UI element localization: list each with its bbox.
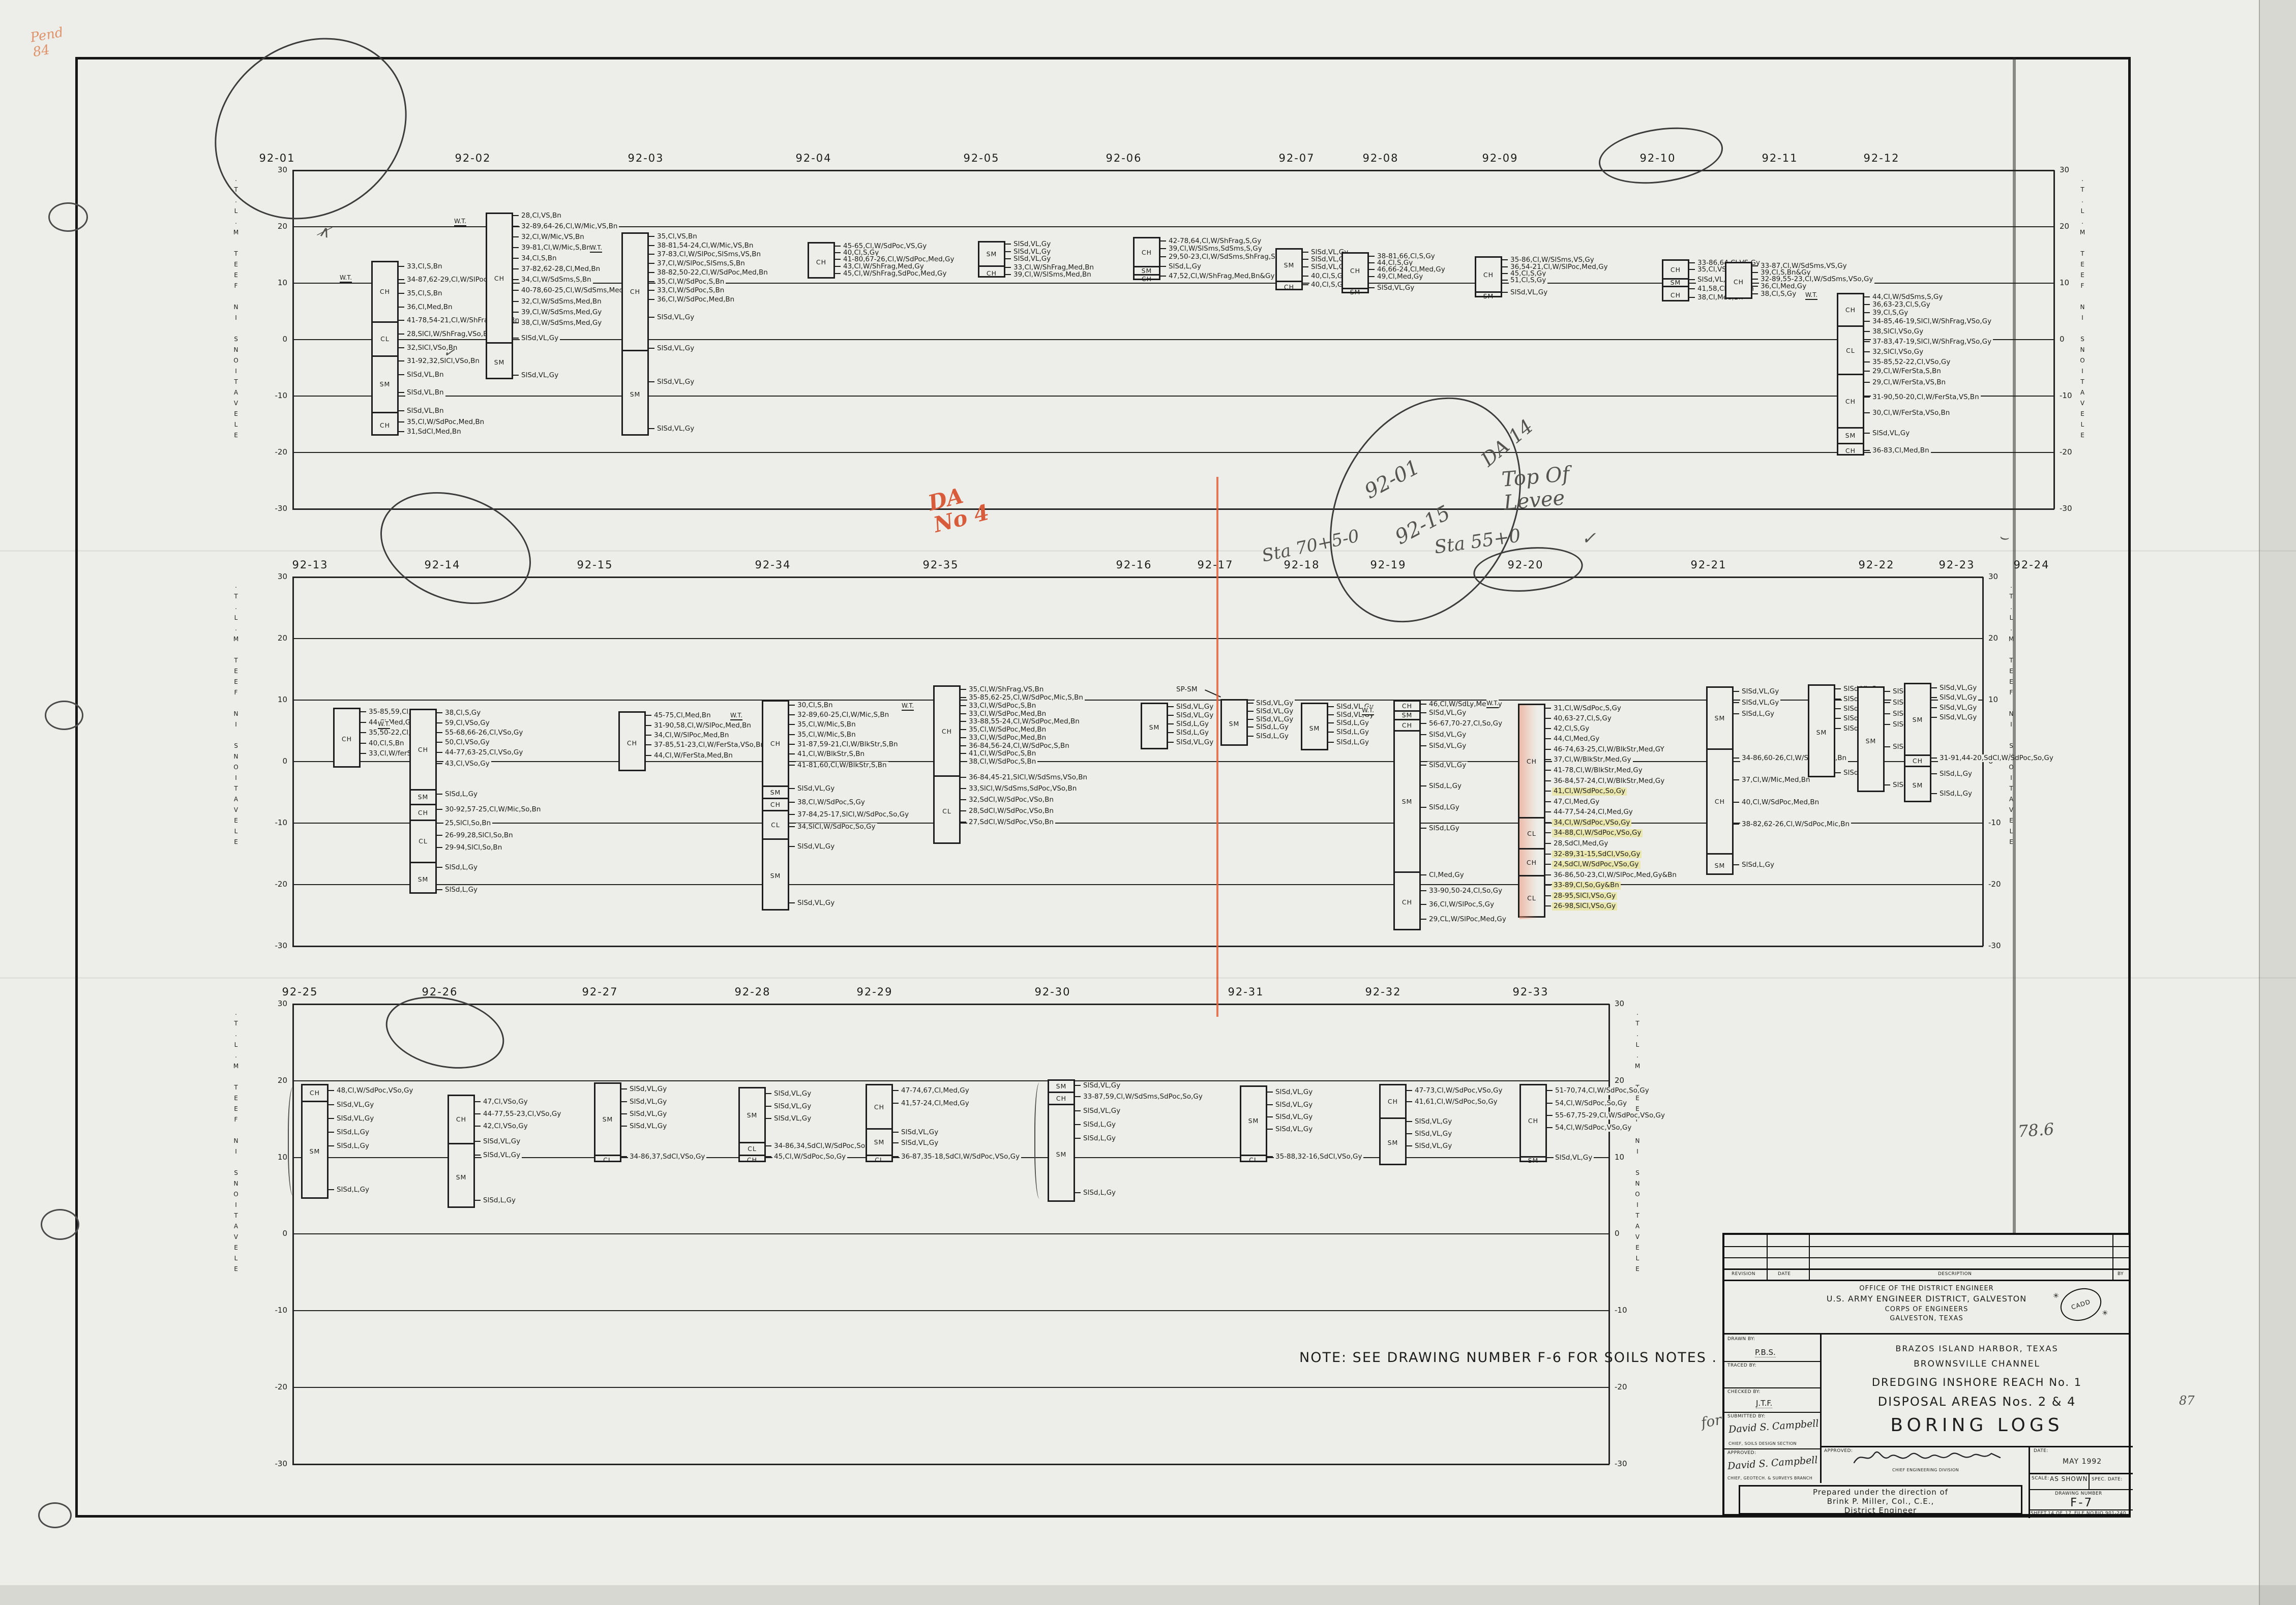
soil-label-tick [961, 753, 966, 754]
soil-label-tick [893, 1156, 899, 1157]
approved2-signature [1852, 1447, 2004, 1468]
soil-zone-code: SM [1905, 684, 1930, 754]
boring-bar-92-28: SMCLCH [738, 1087, 766, 1162]
soil-label-tick [1075, 1192, 1081, 1193]
soil-label-tick [1689, 297, 1695, 298]
soil-label-tick [1075, 1124, 1081, 1125]
elevation-tick-label: 30 [264, 573, 287, 581]
elevation-axis-label: .T.L.M TEEF NI SNOITAVELE [232, 175, 240, 504]
soil-label-tick [621, 1126, 627, 1127]
soil-label-tick [1734, 802, 1739, 803]
boring-bar-92-21: SMCHSM [1706, 686, 1734, 874]
soil-label: SlSd,VL,Gy [628, 1098, 668, 1106]
soil-label: 35-85,62-25,Cl,W/SdPoc,Mic,S,Bn [967, 694, 1085, 702]
checked-by-value: J.T.F. [1756, 1399, 1772, 1408]
boring-header: 92-06 [1106, 152, 1142, 164]
soil-label-tick [1835, 772, 1841, 773]
soil-label-tick [1545, 738, 1551, 739]
panel-left-frame [292, 577, 294, 946]
boring-header: 92-29 [856, 986, 892, 998]
soil-label: SlSd,VL,Gy [1255, 700, 1295, 708]
soil-label-tick [1835, 688, 1841, 689]
boring-bar-92-15: CH [618, 711, 646, 772]
drawn-by-label: DRAWN BY: [1727, 1337, 1755, 1342]
soil-label: 44,Cl,W/FerSta,Med,Bn [652, 752, 734, 760]
soil-label-tick [649, 317, 654, 318]
soil-label-tick [329, 1090, 334, 1091]
soil-label-tick [1160, 240, 1166, 241]
soil-label: 37-85,51-23,Cl,W/FerSta,VSo,Bn [652, 741, 766, 749]
soil-zone-code: SM [1049, 1081, 1074, 1092]
soil-zone-code: SM [595, 1084, 620, 1155]
soil-label-tick [1421, 890, 1426, 891]
soil-label: SlSd,L,Gy [1335, 719, 1370, 728]
soil-label: SlSd,L,Gy [1082, 1121, 1117, 1129]
soil-label-tick [1267, 1156, 1273, 1157]
soil-label-tick [621, 1088, 627, 1089]
scan-fold-crease [0, 550, 2296, 552]
soil-label: SlSd,VL,Gy [796, 785, 836, 793]
soil-label: SlSd,L,Gy [335, 1142, 371, 1150]
soil-label-tick [1248, 736, 1254, 737]
soil-zone-code: SM [1395, 710, 1419, 719]
soil-zone-code: SM [1241, 1087, 1266, 1155]
soil-label-tick [399, 279, 404, 280]
cadd-label: CADD [2070, 1298, 2091, 1311]
soil-label-tick [1864, 450, 1870, 451]
soil-zone-code: CH [411, 710, 435, 789]
gridline [292, 638, 1983, 639]
soil-label-tick [399, 431, 404, 432]
soil-label-tick [1421, 704, 1426, 705]
soil-label-tick [1160, 256, 1166, 257]
soil-label: 55-68,66-26,Cl,VSo,Gy [443, 729, 524, 737]
elevation-tick-label: -10 [264, 1307, 287, 1314]
elevation-tick-label: -10 [1988, 819, 2001, 827]
soil-label: SlSd,VL,Gy [772, 1103, 813, 1111]
soil-label-tick [621, 1113, 627, 1114]
gridline [292, 1004, 1609, 1005]
soil-label-tick [1689, 279, 1695, 280]
soil-label-tick [1752, 272, 1758, 273]
soil-label-tick [1421, 904, 1426, 905]
boring-bar-92-12: CHCLCHSMCH [1837, 293, 1864, 456]
water-table-marker: W.T. [1362, 707, 1374, 715]
soil-zone-code: SM [1859, 688, 1883, 794]
soil-label-tick [789, 802, 795, 803]
paper-edge-bottom [0, 1585, 2296, 1605]
soil-label: SlSd,VL,Gy [655, 378, 696, 386]
soil-zone-code: CL [373, 321, 397, 355]
red-marker-line [1216, 477, 1218, 1017]
boring-header: 92-12 [1863, 152, 1899, 164]
soil-label-tick [361, 711, 366, 712]
boring-header: 92-15 [577, 559, 613, 571]
boring-header: 92-22 [1858, 559, 1894, 571]
soil-zone-code: CH [1521, 1085, 1545, 1156]
soil-zone-code: CH [373, 412, 397, 437]
soil-zone-code: CL [1519, 817, 1544, 848]
soil-label: SlSd,VL,Gy [520, 372, 560, 380]
soil-label-tick [1168, 715, 1174, 716]
soil-label-tick [1267, 1116, 1273, 1117]
soil-label-tick [1267, 1092, 1273, 1093]
soil-label: 51,Cl,S,Gy [1509, 277, 1547, 285]
soil-zone-code: CH [449, 1096, 473, 1143]
soil-label: 44-77,54-24,Cl,Med,Gy [1552, 808, 1634, 816]
soil-label-tick [766, 1156, 771, 1157]
soil-label: 49,Cl,Med,Gy [1376, 273, 1424, 281]
soil-label-tick [961, 705, 966, 706]
boring-bar-92-20: CHCLCHCL [1518, 704, 1545, 918]
soil-label-tick [1885, 691, 1890, 692]
soil-label: 29,Cl,W/FerSta,VS,Bn [1871, 379, 1947, 387]
soil-label: 38,SlCl,VSo,Gy [1871, 328, 1925, 336]
soil-label: 42,Cl,S,Gy [1552, 725, 1591, 733]
soil-label-tick [1075, 1096, 1081, 1097]
soil-label-tick [1931, 773, 1937, 774]
soil-zone-code: CH [1381, 1085, 1405, 1117]
soil-label: 54,Cl,W/SdPoc,So,Gy [1554, 1100, 1628, 1108]
soil-label: SlSd,VL,Bn [405, 407, 445, 415]
soil-label-tick [513, 312, 519, 313]
panel-right-frame [1608, 1004, 1610, 1464]
boring-bar-92-35: CHCL [933, 685, 961, 844]
soil-label: 31-90,58,Cl,W/SlPoc,Med,Bn [652, 722, 753, 730]
panel-left-frame [292, 170, 294, 509]
soil-zone-code: SM [411, 789, 435, 804]
soil-zone-code: CH [1343, 254, 1367, 288]
elevation-tick-label: 30 [1615, 1000, 1624, 1008]
gridline [292, 170, 2054, 171]
scan-fold-crease [0, 977, 2296, 979]
soil-label-tick [1545, 905, 1551, 906]
elevation-tick-label: -30 [2060, 505, 2072, 512]
soil-label-tick [649, 272, 654, 273]
soil-label-tick [1547, 1115, 1553, 1116]
soil-label-tick [1407, 1133, 1412, 1134]
soil-label: 34-85,46-19,SlCl,W/ShFrag,VSo,Gy [1871, 318, 1993, 326]
soil-label: SlSd,VL,Gy [1274, 1113, 1314, 1122]
soil-label: SlSd,VL,Gy [1175, 712, 1215, 720]
soil-zone-code: CH [935, 687, 959, 775]
soil-label: SlSd,L,Gy [1938, 790, 1974, 798]
soil-zone-code: CH [623, 234, 647, 350]
soil-label-tick [789, 724, 795, 725]
soil-label: 42-78,64,Cl,W/ShFrag,S,Gy [1167, 237, 1263, 246]
soil-label-tick [1168, 742, 1174, 743]
water-table-marker: W.T. [454, 218, 466, 226]
soil-zone-code: SM [1809, 686, 1834, 779]
soil-zone-code: SM [1277, 250, 1301, 281]
soil-label: SlSd,VL,Gy [900, 1139, 940, 1147]
soil-label-tick [361, 743, 366, 744]
soil-label-tick [1864, 296, 1870, 297]
soil-label-tick [649, 245, 654, 246]
soil-label: SlSd,L,Gy [443, 791, 479, 799]
soil-label-tick [789, 902, 795, 903]
soil-label-tick [961, 761, 966, 762]
prepared-line-2: Brink P. Miller, Col., C.E., [1740, 1497, 2021, 1506]
soil-label-tick [766, 1106, 771, 1107]
soil-label-tick [1075, 1110, 1081, 1111]
soil-zone-code: CH [1395, 719, 1419, 730]
boring-header: 92-08 [1362, 152, 1398, 164]
soil-label-tick [646, 735, 651, 736]
soil-label: 34-88,Cl,W/SdPoc,VSo,Gy [1552, 829, 1643, 837]
gridline [292, 396, 2054, 397]
soil-label-tick [1005, 274, 1011, 275]
boring-bar-92-08: CHSM [1341, 252, 1369, 293]
soil-label: SlSd,VL,Gy [1871, 430, 1911, 438]
elevation-tick-label: -10 [264, 392, 287, 400]
soil-label-tick [1864, 371, 1870, 372]
soil-label: 24,SdCl,W/SdPoc,VSo,Gy [1552, 861, 1641, 869]
soil-label: SlSd,VL,Gy [1427, 709, 1468, 717]
soil-label: SlSd,VL,Gy [482, 1138, 522, 1146]
soil-zone-code: CL [1241, 1155, 1266, 1164]
boring-bar-92-03: CHSM [621, 232, 649, 436]
project-line-2: BROWNSVILLE CHANNEL [1821, 1359, 2133, 1369]
soil-label-tick [1005, 258, 1011, 259]
soil-zone-code: CH [867, 1085, 891, 1128]
soil-label-tick [399, 374, 404, 375]
soil-label: 47,Cl,Med,Gy [1552, 798, 1601, 806]
soil-label-tick [1248, 711, 1254, 712]
soil-zone-code: CH [620, 713, 644, 773]
soil-label-tick [475, 1141, 481, 1142]
elevation-tick-label: -20 [264, 1383, 287, 1391]
soil-zone-code: CH [335, 709, 359, 770]
soil-zone-code: CH [1663, 286, 1688, 302]
soil-label-tick [1407, 1101, 1412, 1102]
scan-fold-crease [2013, 57, 2016, 1233]
soil-zone-code: CH [1838, 374, 1863, 427]
soil-label: SlSd,VL,Gy [1413, 1118, 1453, 1126]
soil-zone-code: SM [740, 1088, 764, 1142]
soil-label-tick [1545, 832, 1551, 833]
zone-brace [288, 1087, 298, 1196]
soil-label: 47-74,67,Cl,Med,Gy [900, 1087, 971, 1095]
soil-label-tick [1160, 248, 1166, 249]
soil-zone-code: CH [1519, 705, 1544, 817]
boring-header: 92-17 [1197, 559, 1233, 571]
boring-header: 92-28 [734, 986, 770, 998]
soil-label-tick [1005, 244, 1011, 245]
soil-label-tick [1864, 361, 1870, 362]
soil-label-tick [1421, 874, 1426, 875]
soil-zone-code: SM [1521, 1156, 1545, 1164]
elevation-tick-label: 10 [264, 696, 287, 704]
water-table-marker: W.T. [1805, 291, 1817, 300]
soil-label-tick [1835, 699, 1841, 700]
soil-label-tick [1407, 1145, 1412, 1146]
soil-label-tick [649, 299, 654, 300]
soil-label: 28,SlCl,W/ShFrag,VSo,Bn [405, 330, 494, 339]
elevation-axis-label: .T.L.M TEEF NI SNOITAVELE [232, 1009, 240, 1459]
soil-label-tick [1248, 703, 1254, 704]
soil-label: 31-87,59-21,Cl,W/BlkStr,S,Bn [796, 741, 900, 749]
elevation-tick-label: 0 [264, 336, 287, 343]
soil-label: 28,SdCl,W/SdPoc,VSo,Bn [967, 807, 1055, 815]
soil-label: 38,Cl,S,Gy [1759, 290, 1798, 298]
elevation-tick-label: -20 [264, 448, 287, 456]
soil-label-tick [329, 1189, 334, 1190]
title-block: REVISION DATE DESCRIPTION BY OFFICE OF T… [1722, 1233, 2131, 1516]
rev-col-date: DATE [1778, 1271, 1791, 1277]
soil-label: 44-77,55-23,Cl,VSo,Gy [482, 1110, 562, 1118]
soil-label-tick [893, 1103, 899, 1104]
soil-label-tick [1369, 256, 1375, 257]
scale-value: AS SHOWN [2050, 1475, 2088, 1482]
soil-label-tick [1421, 765, 1426, 766]
soil-label: 40-78,60-25,Cl,W/SdSms,Med,Bn [520, 287, 636, 295]
soil-zone-code: SM [487, 342, 512, 380]
soil-zone-code: SM [411, 862, 435, 896]
prepared-line-1: Prepared under the direction of [1740, 1488, 2021, 1497]
water-table-marker: W.T. [1486, 700, 1499, 708]
soil-label: 40,Cl,W/SdPoc,Med,Bn [1740, 799, 1821, 807]
elevation-tick-label: 0 [2060, 336, 2065, 343]
soil-zone-code: SM [449, 1143, 473, 1209]
soil-label-tick [513, 236, 519, 237]
soil-label: 42,Cl,VSo,Gy [482, 1123, 529, 1131]
soil-label: SlSd,VL,Gy [1012, 255, 1052, 263]
gridline [292, 884, 1983, 885]
soil-label-tick [961, 737, 966, 738]
soil-label: SlSd,L,Gy [1255, 723, 1290, 732]
boring-header: 92-07 [1278, 152, 1315, 164]
approved2-label: APPROVED: [1824, 1448, 1853, 1453]
soil-label: 41-78,Cl,W/BlkStr,Med,Gy [1552, 767, 1644, 775]
soil-zone-code: CH [487, 214, 512, 342]
soil-zone-code: CH [1519, 848, 1544, 875]
soil-label: 31,Cl,W/SdPoc,S,Gy [1552, 705, 1623, 713]
soil-label: SlSd,L,Gy [1740, 861, 1776, 869]
soil-label: 33,Cl,W/SdPoc,Med,Bn [967, 710, 1048, 718]
elevation-tick-label: -20 [264, 881, 287, 888]
pencil-handwriting: 78.6 [2017, 1120, 2055, 1141]
soil-label-tick [1547, 1103, 1553, 1104]
soil-zone-code: SM [1222, 701, 1246, 747]
project-block: BRAZOS ISLAND HARBOR, TEXAS BROWNSVILLE … [1821, 1335, 2133, 1446]
soil-label-tick [1545, 885, 1551, 886]
soil-zone-code: CH [740, 1155, 764, 1164]
soil-label-tick [1864, 433, 1870, 434]
soil-label-tick [789, 753, 795, 754]
soil-label-tick [835, 252, 841, 253]
elevation-tick-label: 10 [1988, 696, 1998, 704]
soil-label-tick [1545, 780, 1551, 781]
soil-label: SlSd,VL,Gy [1554, 1154, 1594, 1162]
soil-label-tick [1885, 724, 1890, 725]
soil-label-tick [893, 1090, 899, 1091]
submitted-signature: David S. Campbell [1728, 1418, 1819, 1435]
soil-label: 36-86,50-23,Cl,W/SlPoc,Med,Gy&Bn [1552, 871, 1678, 880]
boring-header: 92-21 [1690, 559, 1726, 571]
soil-label-tick [649, 381, 654, 382]
elevation-tick-label: 10 [2060, 279, 2069, 287]
soil-label: 33,Cl,W/SdPoc,S,Bn [967, 702, 1037, 710]
soil-label: 34,Cl,W/SdPoc,VSo,Gy [1552, 819, 1631, 827]
soil-zone-code: SM [1381, 1117, 1405, 1167]
soil-label: 36,Cl,Med,Gy [1759, 283, 1808, 291]
soil-label: 34,Cl,W/SdSms,S,Bn [520, 276, 593, 284]
soil-label-tick [437, 742, 442, 743]
soil-label: SlSd,LGy [1427, 825, 1461, 833]
soil-label-tick [1303, 259, 1308, 260]
approved1-label: APPROVED: [1727, 1450, 1756, 1456]
soil-label: SlSd,L,Gy [443, 864, 479, 872]
soil-label: SlSd,VL,Gy [655, 314, 696, 322]
elevation-tick-label: -20 [2060, 448, 2072, 456]
soil-label: Cl,Med,Gy [1427, 871, 1466, 880]
boring-header: 92-04 [795, 152, 831, 164]
drawing-number-value: F-7 [2070, 1496, 2093, 1509]
boring-bar-92-32: CHSM [1379, 1084, 1407, 1165]
date-label: DATE: [2034, 1448, 2048, 1453]
soil-label-tick [649, 236, 654, 237]
soil-label-tick [893, 1132, 899, 1133]
soil-label-tick [1421, 745, 1426, 746]
soil-label: 35,Cl,S,Bn [405, 290, 444, 298]
soil-label: SlSd,VL,Gy [1413, 1130, 1453, 1138]
soil-label-tick [1835, 718, 1841, 719]
soil-zone-code: CH [809, 244, 833, 280]
elevation-tick-label: 0 [264, 1230, 287, 1237]
soil-label: SlSd,L,Gy [1335, 729, 1370, 737]
soil-label-tick [1502, 292, 1508, 293]
boring-header: 92-23 [1939, 559, 1975, 571]
soil-label-tick [437, 763, 442, 764]
soil-label-tick [1421, 734, 1426, 735]
soil-zone-code: CH [1838, 294, 1863, 325]
soil-label-tick [513, 226, 519, 227]
soil-label: 30-92,57-25,Cl,W/Mic,So,Bn [443, 806, 542, 814]
approved1-title: CHIEF, GEOTECH. & SURVEYS BRANCH [1727, 1476, 1812, 1480]
soil-label-tick [1864, 341, 1870, 342]
boring-bar-92-13: CH [333, 708, 361, 768]
boring-header: 92-35 [922, 559, 959, 571]
elevation-tick-label: -10 [264, 819, 287, 827]
soil-label: 31-91,44-20,SdCl,W/SdPoc,So,Gy [1938, 754, 2055, 763]
soil-label-tick [399, 334, 404, 335]
soil-label-tick [1835, 728, 1841, 729]
boring-bar-92-02: CHSM [486, 213, 513, 379]
hole-punch-mark [45, 701, 83, 730]
boring-bar-92-33: CHSM [1519, 1084, 1547, 1162]
soil-label: SlSd,VL,Gy [1740, 699, 1780, 707]
soil-label: 44,Cl,Med,Gy [367, 719, 416, 727]
soil-zone-code: SM [1838, 427, 1863, 443]
soil-label-tick [399, 347, 404, 348]
project-line-1: BRAZOS ISLAND HARBOR, TEXAS [1821, 1344, 2133, 1353]
soil-label-tick [437, 867, 442, 868]
pencil-handwriting: Top Of Levee [1501, 462, 1572, 514]
soil-label: SlSd,L,Gy [1335, 739, 1370, 747]
prepared-line-3: District Engineer [1740, 1506, 2021, 1515]
soil-label: 32-89,60-25,Cl,W/Mic,S,Bn [796, 711, 890, 719]
soil-zone-code: SM [1663, 278, 1688, 286]
soil-label: 29,CL,W/SlPoc,Med,Gy [1427, 916, 1508, 924]
soil-label: 44,Cl,Med,Gy [1552, 735, 1601, 743]
soil-label-tick [766, 1118, 771, 1119]
soil-label-tick [1931, 687, 1937, 688]
soil-label-tick [437, 823, 442, 824]
soil-label-tick [399, 392, 404, 393]
sheet-of-label: OF [2056, 1511, 2063, 1516]
soil-label-tick [399, 421, 404, 422]
